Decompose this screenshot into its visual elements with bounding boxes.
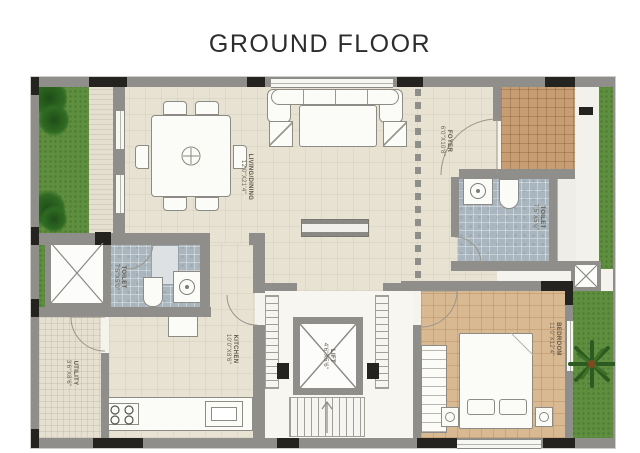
shaft-left	[45, 237, 109, 309]
staircase-lower-flight	[289, 397, 365, 437]
window-dining	[115, 111, 125, 149]
room-name: FOYER	[445, 126, 452, 156]
wall-left	[31, 77, 39, 448]
column	[417, 438, 457, 448]
wall-bedroom-west	[413, 325, 421, 438]
sofa-seat	[299, 105, 377, 147]
nightstand	[441, 407, 459, 427]
side-table	[269, 121, 293, 147]
sofa-back	[271, 89, 399, 105]
kitchen-sink	[205, 401, 243, 427]
stove	[107, 403, 139, 425]
washbasin-left	[173, 271, 201, 303]
column	[543, 438, 575, 448]
column	[367, 363, 379, 379]
plant-icon	[39, 103, 69, 137]
wall-toilet-left-east	[200, 233, 210, 313]
column	[31, 299, 39, 317]
sink-basin	[211, 407, 237, 421]
room-dim: 12'0"X21'4"	[239, 154, 246, 201]
column	[545, 77, 575, 87]
dining-chair	[163, 101, 187, 115]
window-dining	[115, 175, 125, 213]
room-name: TOILET	[538, 204, 545, 231]
room-name: KITCHEN	[231, 334, 238, 364]
column	[31, 77, 39, 95]
column	[579, 107, 593, 115]
column	[31, 227, 39, 245]
page-title: GROUND FLOOR	[0, 30, 640, 59]
room-dim: 7'5"X5'0"	[531, 204, 538, 231]
room-dim: 4'6"X5'6"	[321, 343, 328, 370]
dining-table	[151, 115, 231, 197]
wall-below-toilet-left	[39, 307, 211, 317]
wall-toilet-left-west	[103, 237, 111, 313]
room-name: LIVING/DINING	[246, 154, 253, 201]
room-name: TOILET	[119, 264, 126, 291]
garden-right-bottom	[571, 291, 613, 438]
dining-chair	[163, 197, 187, 211]
wall-stair-top	[265, 283, 297, 291]
room-name: BEDROOM	[554, 322, 561, 355]
dining-chair	[195, 197, 219, 211]
side-table	[383, 121, 407, 147]
wall-utility-kitchen	[101, 353, 109, 438]
wc-right	[499, 179, 519, 209]
window-bedroom-bottom	[457, 439, 541, 449]
column	[277, 438, 299, 448]
room-dim: 10'0"X8'6"	[224, 334, 231, 364]
wall-kitchen-east	[253, 243, 265, 293]
room-name: LIFT	[328, 343, 335, 370]
floorplan-page: GROUND FLOOR	[0, 0, 640, 453]
column	[31, 429, 39, 448]
wall-toilet-right-top	[459, 169, 575, 179]
nightstand	[535, 407, 553, 427]
dining-chair	[135, 145, 149, 169]
wall-toilet-right-east	[549, 177, 557, 261]
plant-icon	[41, 205, 67, 233]
window-bedroom-east	[566, 321, 574, 371]
tv-console	[301, 219, 369, 237]
room-name: UTILITY	[71, 360, 78, 387]
wc-left	[143, 277, 163, 307]
wall-toilet-right-bottom	[451, 261, 575, 271]
foyer-partition	[415, 89, 421, 281]
column	[397, 77, 423, 87]
wall-right	[613, 77, 615, 448]
wall-kitchen-east	[253, 325, 265, 438]
room-dim: 11'0"X12'4"	[547, 322, 554, 355]
right-duct-strip	[557, 177, 576, 261]
room-dim: 7'5"X5'0"	[112, 264, 119, 291]
wall-mid-horizontal	[39, 233, 210, 245]
column	[247, 77, 265, 87]
column	[95, 232, 111, 245]
garden-right-top	[599, 79, 613, 269]
pillow	[499, 399, 527, 415]
room-dim: 6'0"X10'8"	[438, 126, 445, 156]
floorplan-drawing: LIVING/DINING 12'0"X21'4" FOYER 6'0"X10'…	[30, 76, 616, 449]
column	[541, 281, 573, 291]
left-walkway	[89, 87, 113, 235]
room-dim: 3'6"X8'6"	[64, 360, 71, 387]
window-living-top	[271, 78, 393, 88]
wall-toilet-right-west	[451, 177, 459, 237]
column	[277, 363, 289, 379]
pillow	[467, 399, 495, 415]
shaft-right	[571, 261, 601, 291]
wall-porch-foyer	[493, 87, 501, 121]
column	[89, 77, 127, 87]
washbasin-right	[463, 177, 493, 205]
column	[565, 291, 573, 305]
entrance-porch-floor	[501, 87, 575, 171]
column	[93, 438, 143, 448]
dining-chair	[195, 101, 219, 115]
